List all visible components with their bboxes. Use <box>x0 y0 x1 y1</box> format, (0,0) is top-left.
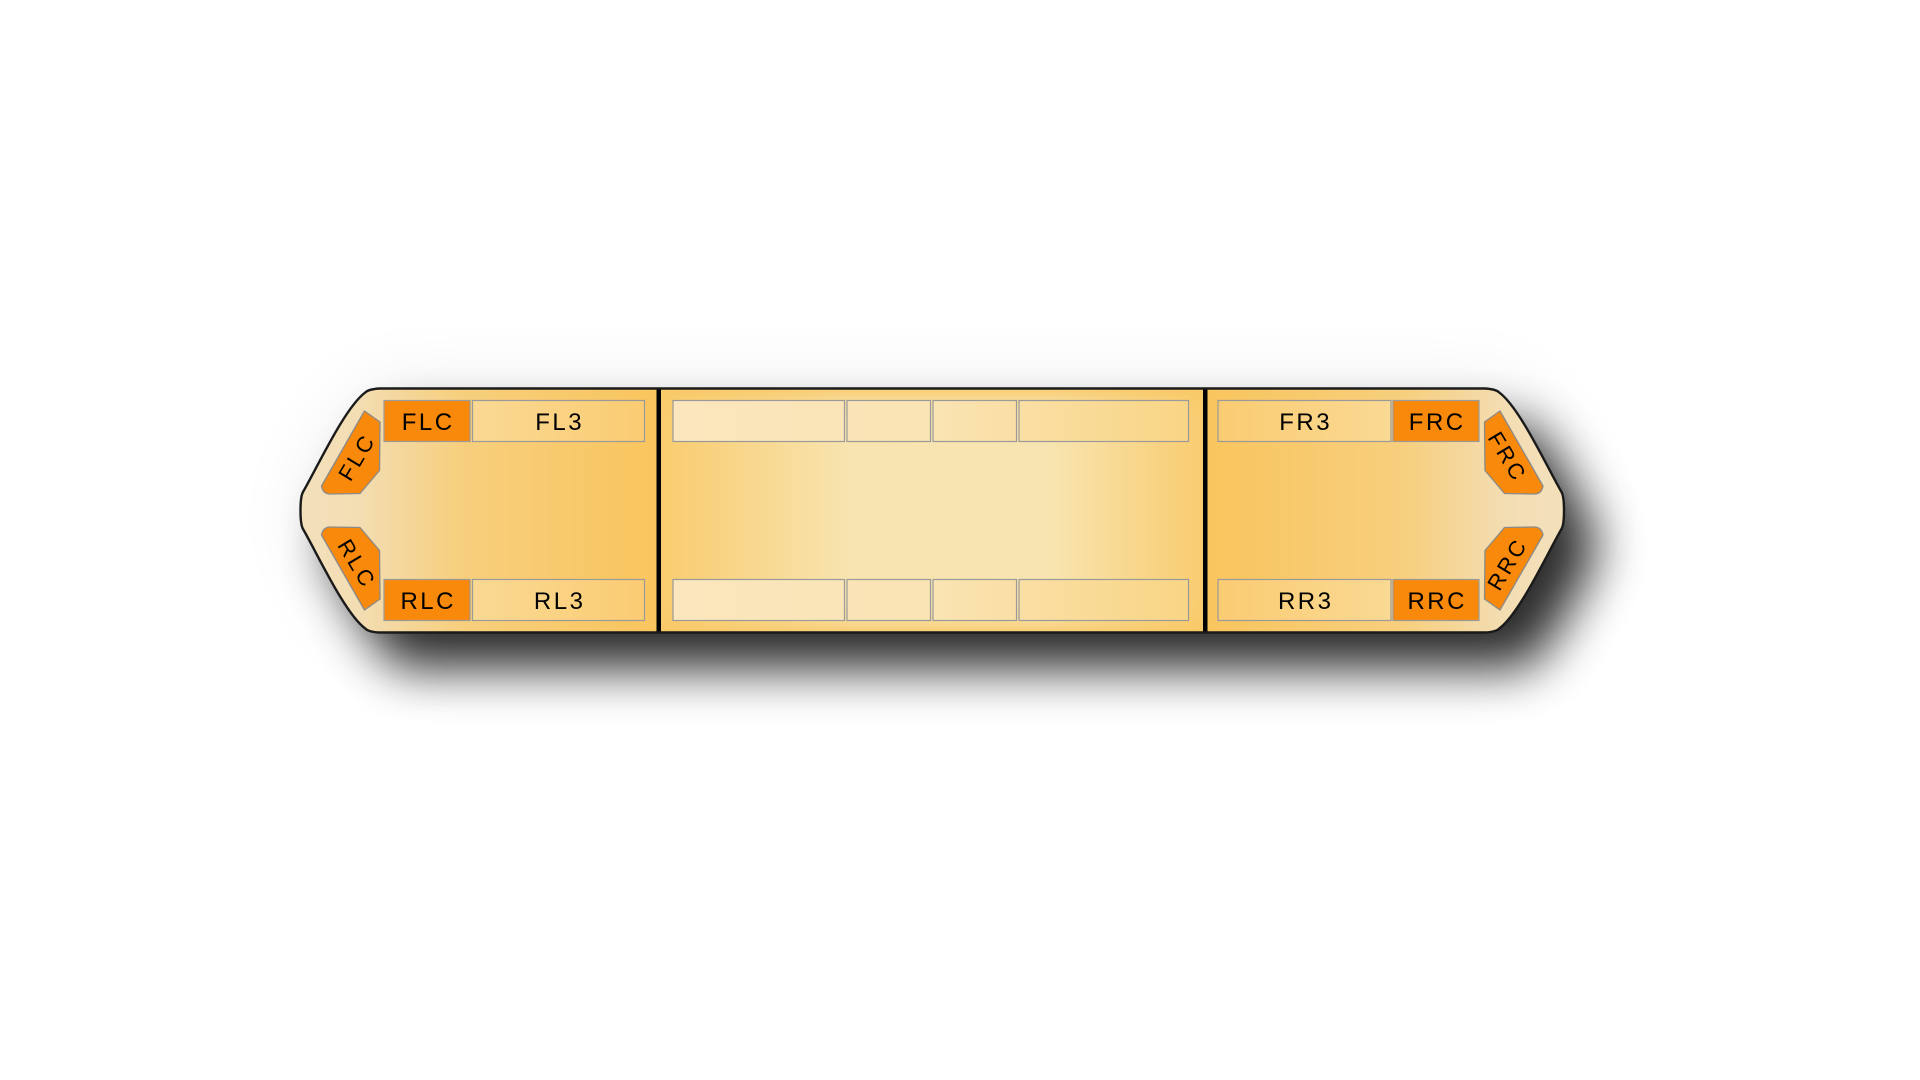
svg-text:RLC: RLC <box>400 588 456 615</box>
svg-text:FRC: FRC <box>1409 409 1466 436</box>
svg-text:RRC: RRC <box>1407 588 1467 615</box>
svg-text:FLC: FLC <box>402 409 455 436</box>
svg-text:RL3: RL3 <box>534 588 586 615</box>
svg-text:RR3: RR3 <box>1278 588 1334 615</box>
svg-text:FL3: FL3 <box>535 409 584 436</box>
svg-text:FR3: FR3 <box>1279 409 1332 436</box>
